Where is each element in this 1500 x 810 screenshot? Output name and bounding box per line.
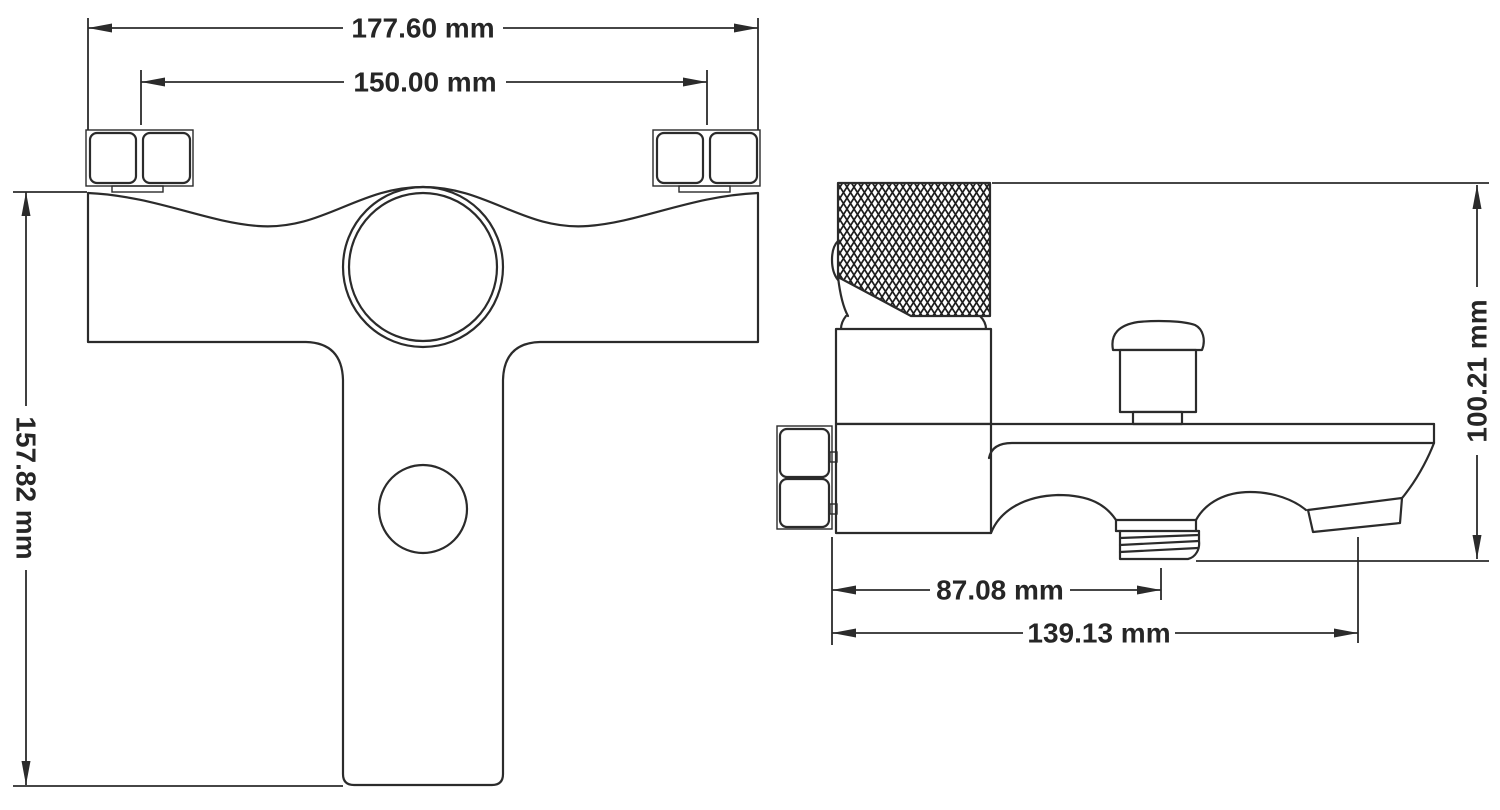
spout-underside-arch-right [1196,492,1306,520]
handle-neck-edge [838,277,848,316]
dim-side-spout-reach: 139.13 mm [832,537,1358,649]
dim-label-front-overall-height: 157.82 mm [11,416,42,559]
handle-knurl [838,183,990,316]
mounting-nut-right [653,130,760,192]
dim-label-side-overall-height: 100.21 mm [1462,299,1493,442]
dim-label-front-overall-width: 177.60 mm [351,13,494,44]
dim-label-side-spout-reach: 139.13 mm [1027,618,1170,649]
dim-front-hole-spacing: 150.00 mm [141,67,707,126]
spout-nose-taper [1402,443,1434,498]
dim-label-side-outlet-offset: 87.08 mm [936,575,1064,606]
handle-collar-left [841,316,846,329]
diverter-knob [1112,321,1203,424]
front-view: 177.60 mm 150.00 mm 157.82 mm [10,13,760,787]
wall-nut-side [777,426,837,529]
side-view: 100.21 mm 87.08 mm 139.13 mm [777,183,1493,649]
spout-underside-arch-left [991,495,1116,533]
mounting-nut-left [86,130,193,192]
spout-tip [1308,498,1402,532]
technical-drawing-canvas: 177.60 mm 150.00 mm 157.82 mm [0,0,1500,810]
valve-body-lower [836,424,991,533]
dim-side-overall-height: 100.21 mm [992,183,1493,561]
shower-outlet-threads [1116,520,1199,559]
valve-body-upper [836,329,991,424]
handle-collar-right [980,316,986,329]
dim-label-front-hole-spacing: 150.00 mm [353,67,496,98]
mixer-body-outline [88,187,758,785]
drawing-svg: 177.60 mm 150.00 mm 157.82 mm [0,0,1500,810]
spout-body [989,424,1434,533]
